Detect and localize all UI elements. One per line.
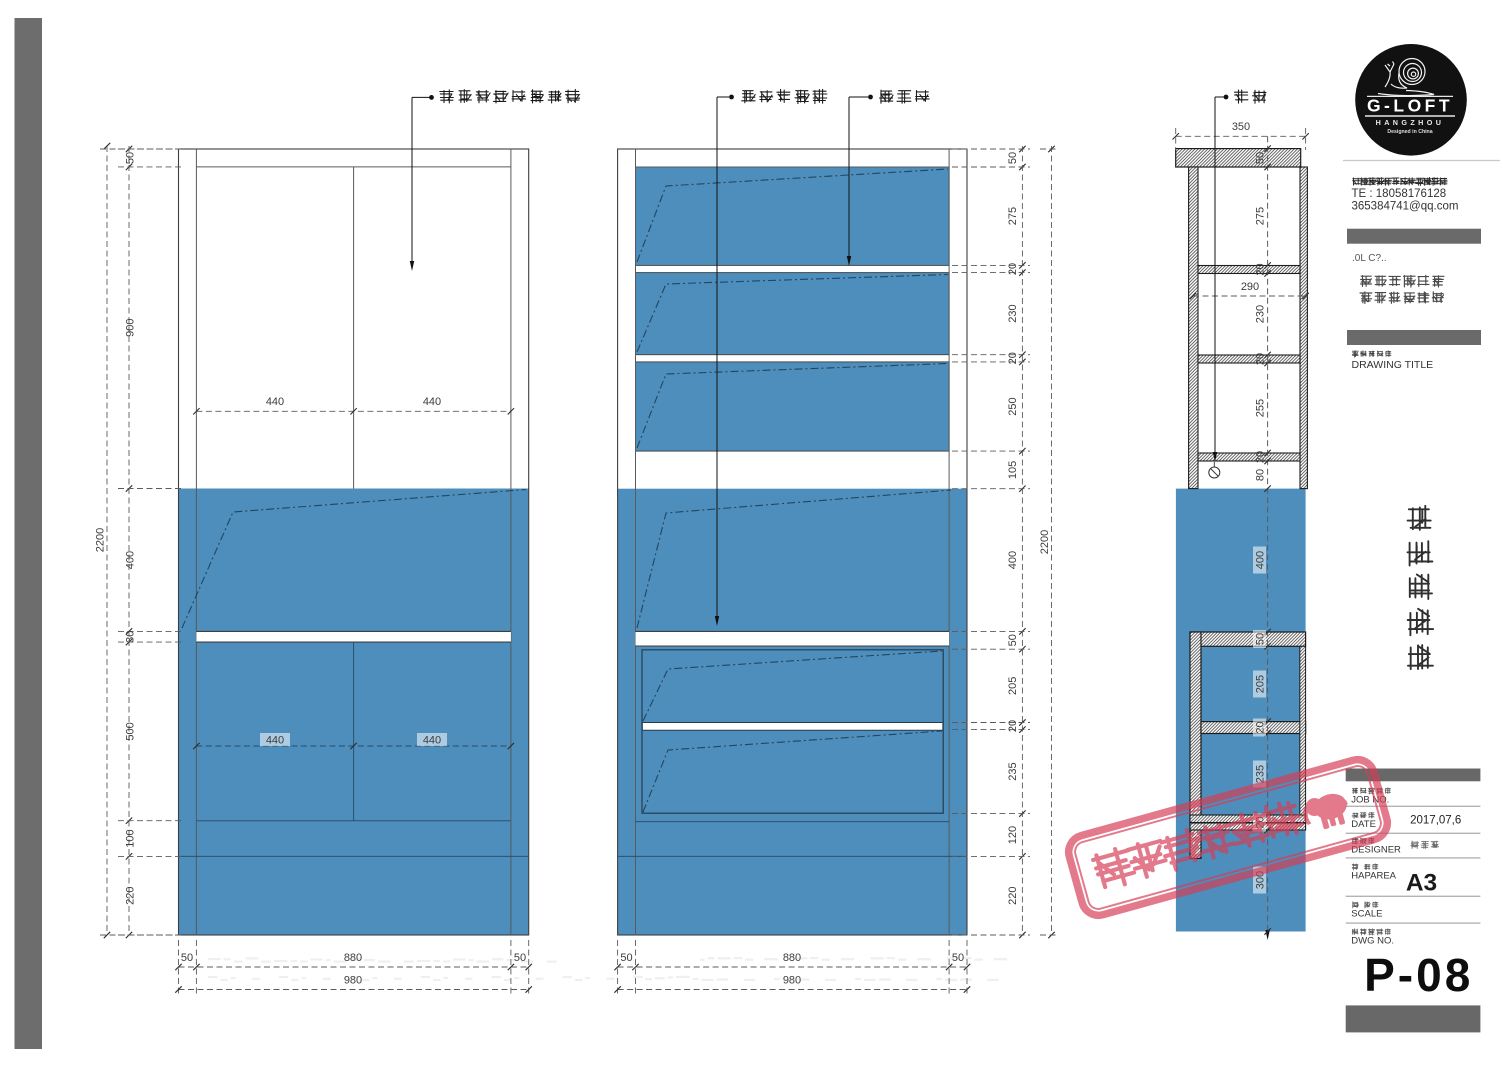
svg-text:30: 30: [125, 631, 137, 643]
svg-text:20: 20: [1255, 263, 1267, 275]
svg-text:440: 440: [423, 396, 441, 408]
svg-text:105: 105: [1007, 461, 1019, 479]
svg-text:DRAWING TITLE: DRAWING TITLE: [1352, 359, 1434, 371]
svg-text:220: 220: [1007, 887, 1019, 905]
svg-text:205: 205: [1007, 677, 1019, 695]
svg-text:275: 275: [1007, 207, 1019, 225]
svg-text:880: 880: [344, 952, 362, 964]
svg-text:120: 120: [1007, 826, 1019, 844]
svg-text:20: 20: [1007, 263, 1019, 275]
svg-text:350: 350: [1232, 121, 1250, 133]
svg-text:DATE: DATE: [1351, 819, 1376, 830]
svg-text:275: 275: [1255, 207, 1267, 225]
svg-text:DWG NO.: DWG NO.: [1351, 936, 1394, 947]
svg-text:900: 900: [125, 319, 137, 337]
svg-text:2017,07,6: 2017,07,6: [1410, 815, 1461, 827]
svg-text:HANGZHOU: HANGZHOU: [1376, 118, 1445, 127]
svg-text:50: 50: [125, 152, 137, 164]
svg-text:440: 440: [266, 735, 284, 747]
svg-text:HAPAREA: HAPAREA: [1351, 871, 1396, 882]
svg-text:400: 400: [125, 551, 137, 569]
svg-text:400: 400: [1007, 551, 1019, 569]
svg-text:290: 290: [1241, 281, 1259, 293]
svg-text:50: 50: [1255, 633, 1267, 645]
svg-text:440: 440: [423, 735, 441, 747]
svg-text:50: 50: [1255, 152, 1267, 164]
svg-text:250: 250: [1007, 397, 1019, 415]
svg-text:SCALE: SCALE: [1351, 909, 1382, 920]
svg-text:20: 20: [1255, 353, 1267, 365]
svg-text:20: 20: [1255, 451, 1267, 463]
svg-text:220: 220: [125, 887, 137, 905]
svg-text:TE : 18058176128: TE : 18058176128: [1352, 188, 1447, 200]
svg-text:50: 50: [1007, 634, 1019, 646]
svg-text:.0L C?..: .0L C?..: [1352, 253, 1387, 264]
svg-text:230: 230: [1255, 305, 1267, 323]
svg-text:100: 100: [125, 829, 137, 847]
svg-text:G-LOFT: G-LOFT: [1367, 96, 1453, 116]
svg-text:255: 255: [1255, 399, 1267, 417]
svg-text:235: 235: [1007, 762, 1019, 780]
svg-text:440: 440: [266, 396, 284, 408]
svg-text:205: 205: [1255, 675, 1267, 693]
svg-text:500: 500: [125, 722, 137, 740]
svg-text:50: 50: [620, 952, 632, 964]
svg-text:50: 50: [1007, 152, 1019, 164]
svg-text:400: 400: [1255, 551, 1267, 569]
svg-text:365384741@qq.com: 365384741@qq.com: [1352, 201, 1459, 213]
svg-text:20: 20: [1255, 721, 1267, 733]
svg-text:P-08: P-08: [1364, 949, 1473, 1001]
svg-text:80: 80: [1255, 469, 1267, 481]
svg-text:Designed in China: Designed in China: [1387, 129, 1432, 135]
svg-text:A3: A3: [1406, 870, 1437, 897]
svg-text:20: 20: [1007, 720, 1019, 732]
svg-text:2200: 2200: [1039, 530, 1051, 554]
svg-text:2200: 2200: [95, 528, 107, 552]
svg-text:50: 50: [181, 952, 193, 964]
svg-text:20: 20: [1007, 352, 1019, 364]
svg-text:235: 235: [1255, 765, 1267, 783]
svg-text:230: 230: [1007, 304, 1019, 322]
